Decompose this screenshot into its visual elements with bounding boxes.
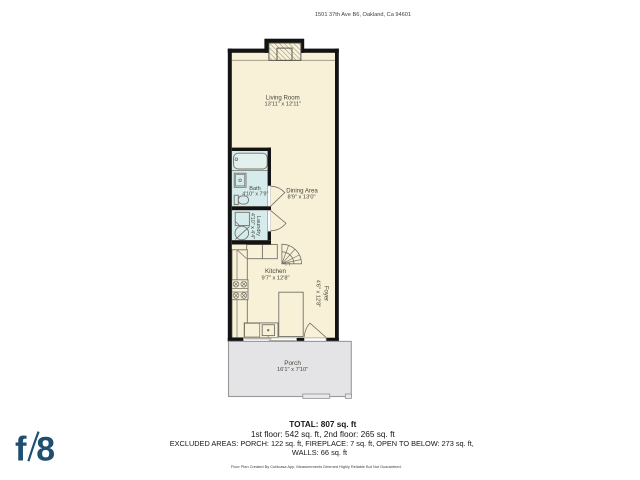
- svg-text:Foyer: Foyer: [322, 286, 328, 301]
- svg-text:Living Room: Living Room: [266, 95, 300, 102]
- svg-text:4'6" x 12'8": 4'6" x 12'8": [315, 280, 321, 308]
- svg-text:Laundry: Laundry: [255, 216, 261, 236]
- svg-text:8'9" x 13'0": 8'9" x 13'0": [287, 194, 315, 200]
- svg-text:9'7" x 12'8": 9'7" x 12'8": [261, 275, 289, 281]
- svg-text:4'10" x 4'4": 4'10" x 4'4": [249, 213, 255, 239]
- svg-text:4'10" x 7'9": 4'10" x 7'9": [242, 191, 268, 197]
- svg-text:Porch: Porch: [284, 360, 301, 367]
- svg-text:16'1" x 7'10": 16'1" x 7'10": [277, 367, 308, 373]
- svg-text:13'11" x 12'11": 13'11" x 12'11": [264, 102, 301, 108]
- svg-text:Kitchen: Kitchen: [265, 268, 287, 275]
